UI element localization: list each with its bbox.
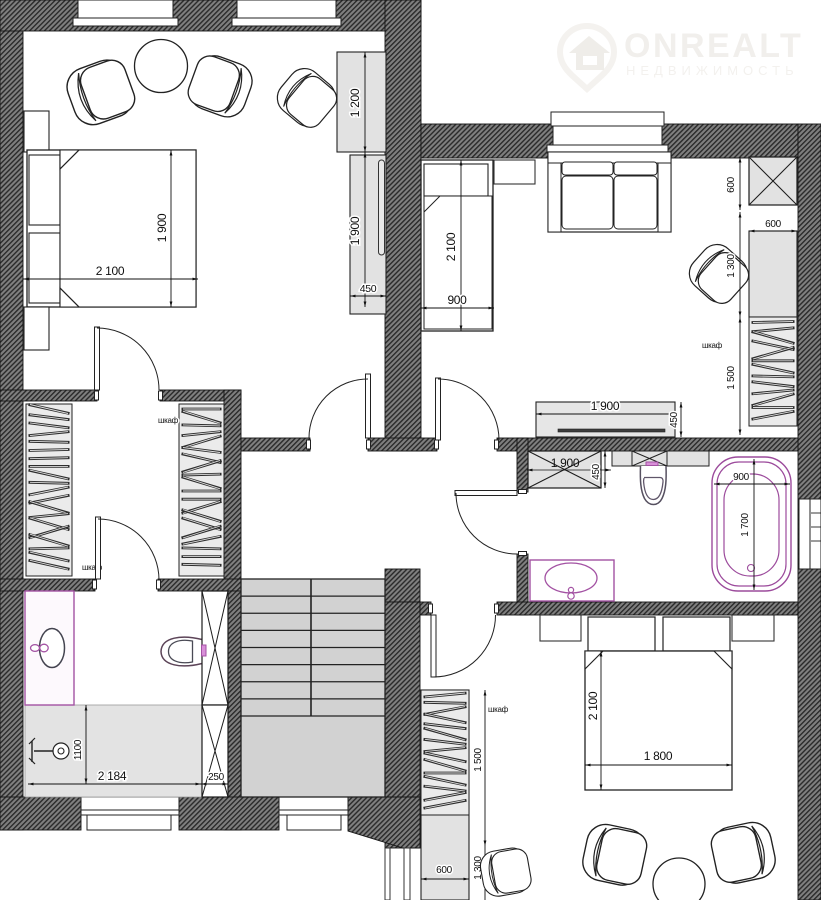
svg-text:2 184: 2 184 — [98, 769, 127, 783]
svg-text:1 900: 1 900 — [551, 456, 580, 470]
svg-text:НЕДВИЖИМОСТЬ: НЕДВИЖИМОСТЬ — [626, 63, 799, 78]
svg-text:ONREALT: ONREALT — [624, 27, 803, 65]
svg-text:1 300: 1 300 — [726, 254, 737, 278]
svg-text:1 900: 1 900 — [348, 216, 362, 245]
svg-text:1 200: 1 200 — [348, 88, 362, 117]
svg-text:2 100: 2 100 — [586, 691, 600, 720]
svg-text:1 900: 1 900 — [591, 399, 620, 413]
svg-text:1 500: 1 500 — [473, 748, 484, 772]
svg-text:шкаф: шкаф — [702, 341, 723, 350]
svg-text:1 700: 1 700 — [740, 513, 751, 537]
svg-text:600: 600 — [765, 219, 782, 230]
svg-text:450: 450 — [591, 463, 602, 480]
svg-text:1 500: 1 500 — [726, 366, 737, 390]
svg-text:900: 900 — [447, 293, 467, 307]
svg-text:250: 250 — [208, 772, 225, 783]
svg-text:2 100: 2 100 — [96, 264, 125, 278]
svg-text:900: 900 — [733, 472, 750, 483]
svg-text:1100: 1100 — [73, 739, 84, 760]
svg-text:600: 600 — [726, 176, 737, 193]
svg-text:шкаф: шкаф — [158, 416, 179, 425]
svg-text:шкаф: шкаф — [488, 705, 509, 714]
svg-text:450: 450 — [669, 411, 680, 428]
svg-text:450: 450 — [360, 283, 377, 295]
svg-text:600: 600 — [436, 865, 453, 876]
svg-text:2 100: 2 100 — [444, 232, 458, 261]
svg-text:1 800: 1 800 — [644, 749, 673, 763]
svg-text:1 900: 1 900 — [155, 213, 169, 242]
